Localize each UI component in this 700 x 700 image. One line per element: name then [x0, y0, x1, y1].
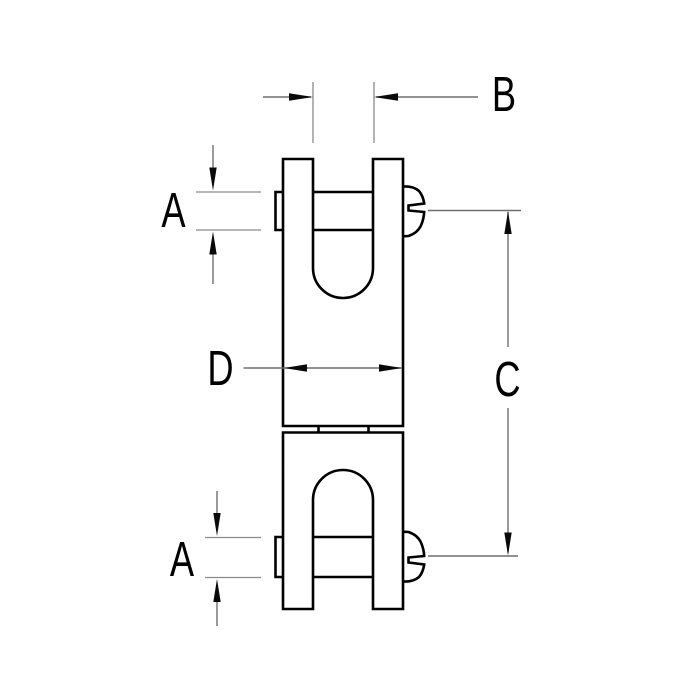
dim-a-bottom-arrow-down — [213, 513, 220, 536]
dim-c-label: C — [494, 353, 520, 408]
dim-a-bottom-label: A — [170, 533, 194, 588]
dim-d-arrow-right — [379, 364, 402, 371]
dim-d-label: D — [207, 342, 233, 397]
dim-a-top-arrow-down — [209, 168, 216, 191]
dimension-c: C — [428, 211, 521, 557]
dim-a-bottom-arrow-up — [213, 579, 220, 602]
upper-pin-screw-head — [403, 186, 424, 236]
dim-c-arrow-up — [504, 211, 511, 234]
dim-b-arrow-left — [289, 93, 313, 100]
dim-a-top-label: A — [161, 184, 185, 239]
dim-b-label: B — [492, 68, 516, 123]
lower-clevis-outline — [283, 433, 403, 610]
dim-b-arrow-right — [374, 93, 398, 100]
dimension-b: B — [263, 68, 516, 143]
dim-a-top-arrow-up — [209, 232, 216, 255]
diagram-canvas: B A D C — [0, 0, 700, 700]
dimension-d: D — [207, 342, 402, 397]
dim-c-arrow-down — [504, 533, 511, 556]
swivel-technical-drawing: B A D C — [0, 0, 700, 700]
swivel-part — [276, 159, 425, 609]
dimension-a-top: A — [161, 145, 261, 284]
upper-clevis-outline — [283, 159, 403, 426]
lower-pin-screw-head — [403, 532, 424, 582]
dim-d-arrow-left — [284, 364, 307, 371]
dimension-a-bottom: A — [170, 491, 261, 626]
